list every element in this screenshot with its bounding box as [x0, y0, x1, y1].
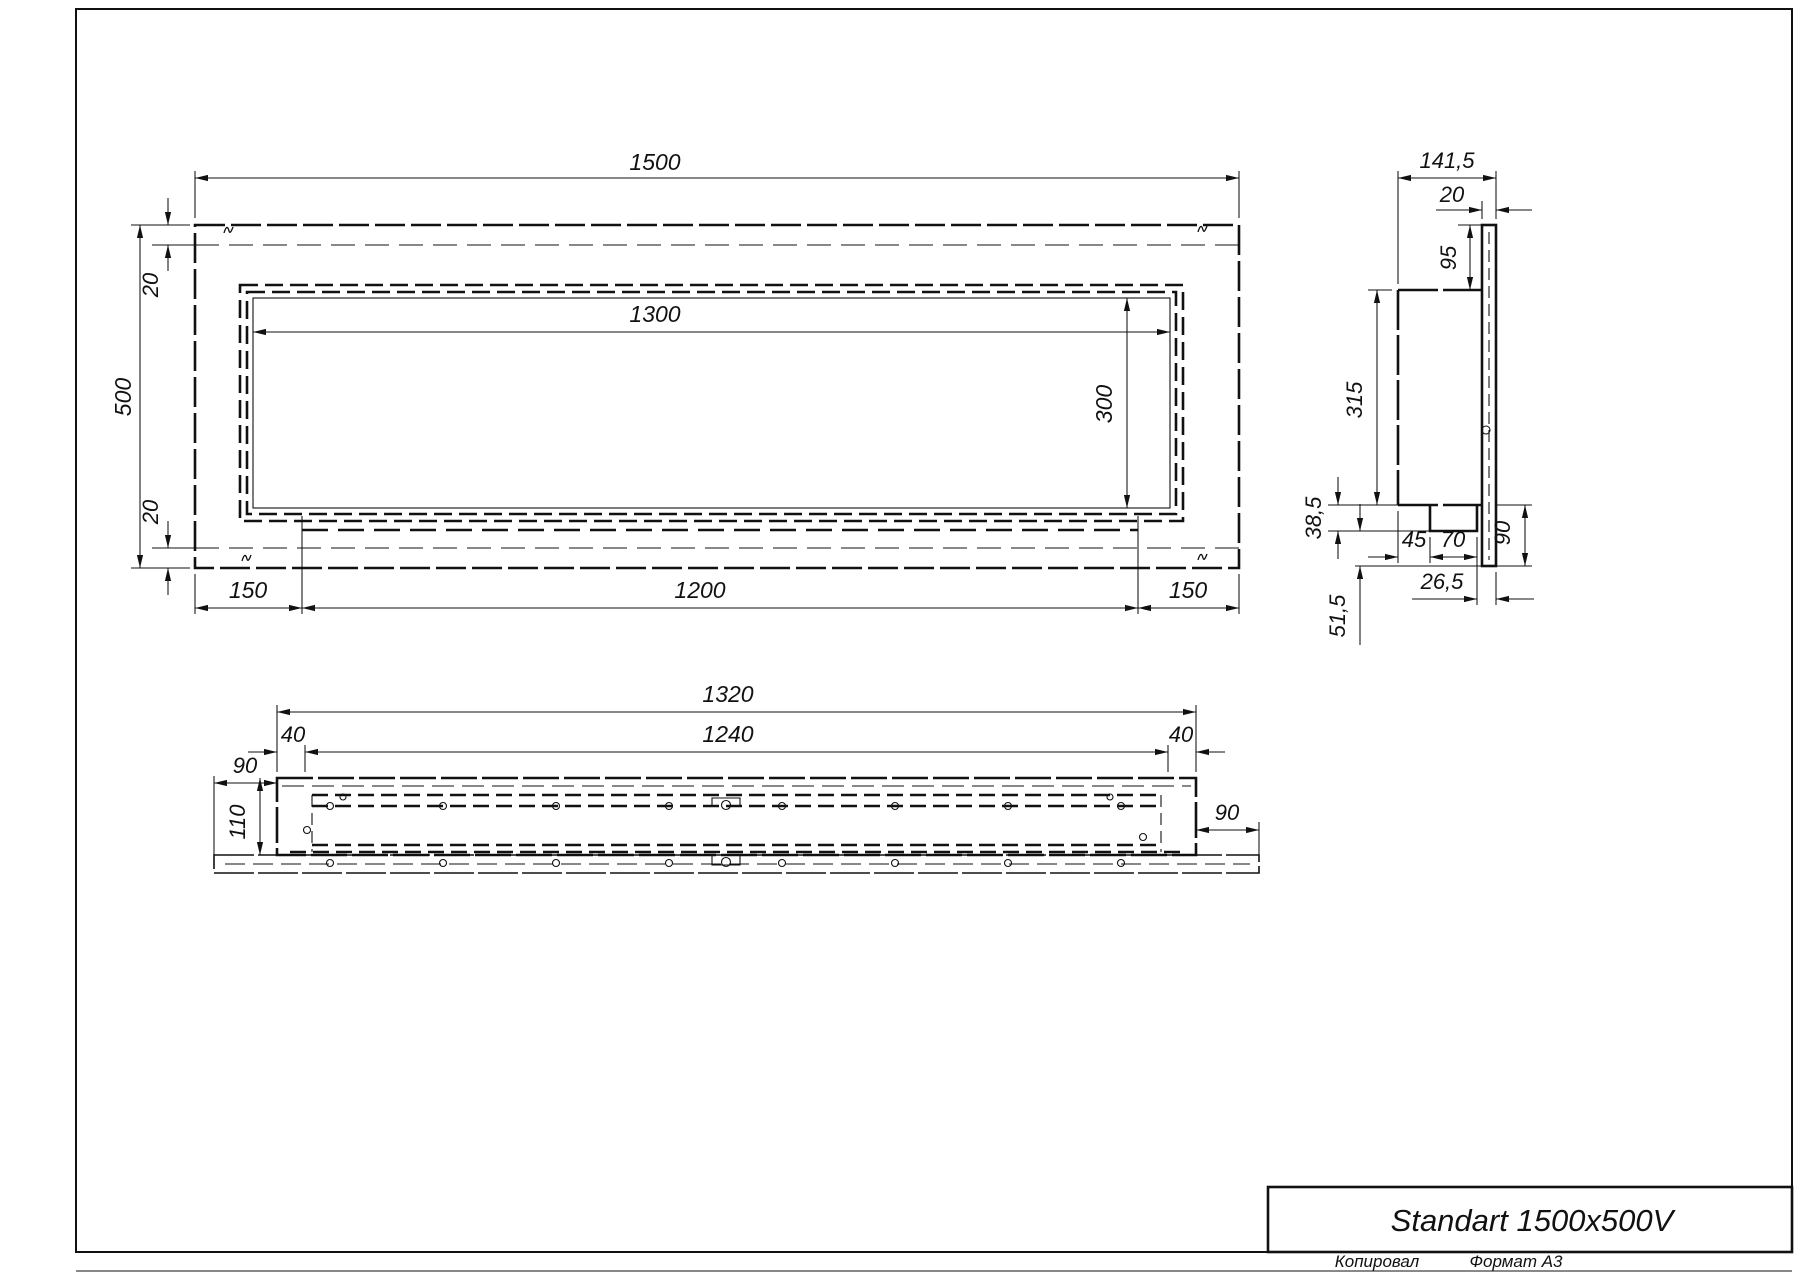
dim-side-bottom-drop: 51,5 — [1325, 504, 1360, 645]
dim-label-20-bottom: 20 — [138, 499, 163, 525]
drawing-canvas: 1500 500 20 20 1300 — [0, 0, 1800, 1273]
bottom-view: 1320 1240 40 40 90 110 90 — [214, 681, 1259, 873]
bottom-body — [214, 778, 1259, 873]
dim-label-1500: 1500 — [629, 149, 680, 175]
dim-label-38-5: 38,5 — [1301, 496, 1326, 540]
dim-label-300: 300 — [1091, 385, 1117, 424]
dim-front-overall-width: 1500 — [195, 149, 1239, 218]
dim-label-141-5: 141,5 — [1419, 148, 1475, 173]
hole-marker — [1005, 860, 1012, 867]
dim-front-face-top: 20 — [138, 198, 195, 298]
sheet-frame — [76, 9, 1792, 1271]
dim-label-1240: 1240 — [702, 721, 753, 747]
dim-label-315: 315 — [1342, 381, 1367, 418]
side-body — [1398, 225, 1496, 566]
drawing-title: Standart 1500x500V — [1391, 1203, 1677, 1238]
dim-label-51-5: 51,5 — [1325, 594, 1350, 638]
dim-label-500: 500 — [110, 378, 136, 417]
dim-label-20-top: 20 — [138, 272, 163, 298]
dim-label-45: 45 — [1402, 527, 1427, 552]
dim-label-90-right: 90 — [1215, 800, 1240, 825]
dim-front-face-bottom: 20 — [138, 499, 195, 595]
drawing-sheet: 1500 500 20 20 1300 — [0, 0, 1800, 1273]
hole-marker — [553, 860, 560, 867]
dim-label-90-side: 90 — [1490, 520, 1515, 545]
dim-bottom-tray-chain: 1240 40 40 — [248, 721, 1225, 772]
dim-label-150-right: 150 — [1169, 577, 1208, 603]
dim-bottom-body-depth: 110 — [225, 778, 260, 855]
hole-marker — [779, 860, 786, 867]
dim-side-top-inset: 95 — [1436, 225, 1482, 290]
format-label: Формат А3 — [1469, 1252, 1563, 1271]
hole-marker — [304, 827, 311, 834]
dim-label-26-5: 26,5 — [1420, 569, 1465, 594]
dim-front-opening-width: 1300 — [253, 301, 1170, 332]
dim-label-90-left: 90 — [233, 753, 258, 778]
dim-front-opening-height: 300 — [1091, 298, 1127, 508]
dim-side-face-thickness: 20 — [1436, 182, 1532, 219]
side-view: 141,5 20 95 315 38,5 — [1301, 148, 1534, 645]
hole-marker — [892, 860, 899, 867]
dim-label-70: 70 — [1441, 527, 1466, 552]
front-break-marks — [224, 226, 1207, 561]
front-view: 1500 500 20 20 1300 — [110, 149, 1239, 614]
front-opening — [240, 285, 1183, 530]
dim-label-1200: 1200 — [674, 577, 725, 603]
title-block: Standart 1500x500V Копировал Формат А3 — [1268, 1187, 1792, 1271]
hole-marker — [666, 860, 673, 867]
front-hidden-face-edges — [195, 245, 1239, 548]
copied-label: Копировал — [1335, 1252, 1420, 1271]
dim-label-150-left: 150 — [229, 577, 268, 603]
dim-label-40-left: 40 — [281, 722, 306, 747]
dim-side-body-height: 315 — [1328, 290, 1398, 505]
dim-label-1320: 1320 — [702, 681, 753, 707]
dim-label-1300: 1300 — [629, 301, 680, 327]
dim-label-95: 95 — [1436, 245, 1461, 270]
dim-bottom-overhang-right: 90 — [1196, 800, 1259, 855]
hole-marker — [327, 860, 334, 867]
dim-label-20-side: 20 — [1439, 182, 1465, 207]
front-outer-body — [195, 225, 1239, 568]
hole-marker — [1140, 834, 1147, 841]
hole-marker — [440, 860, 447, 867]
dim-label-110: 110 — [225, 804, 250, 840]
dim-side-lip-offset: 26,5 — [1412, 569, 1534, 605]
dim-label-40-right: 40 — [1169, 722, 1194, 747]
hole-marker — [1118, 860, 1125, 867]
